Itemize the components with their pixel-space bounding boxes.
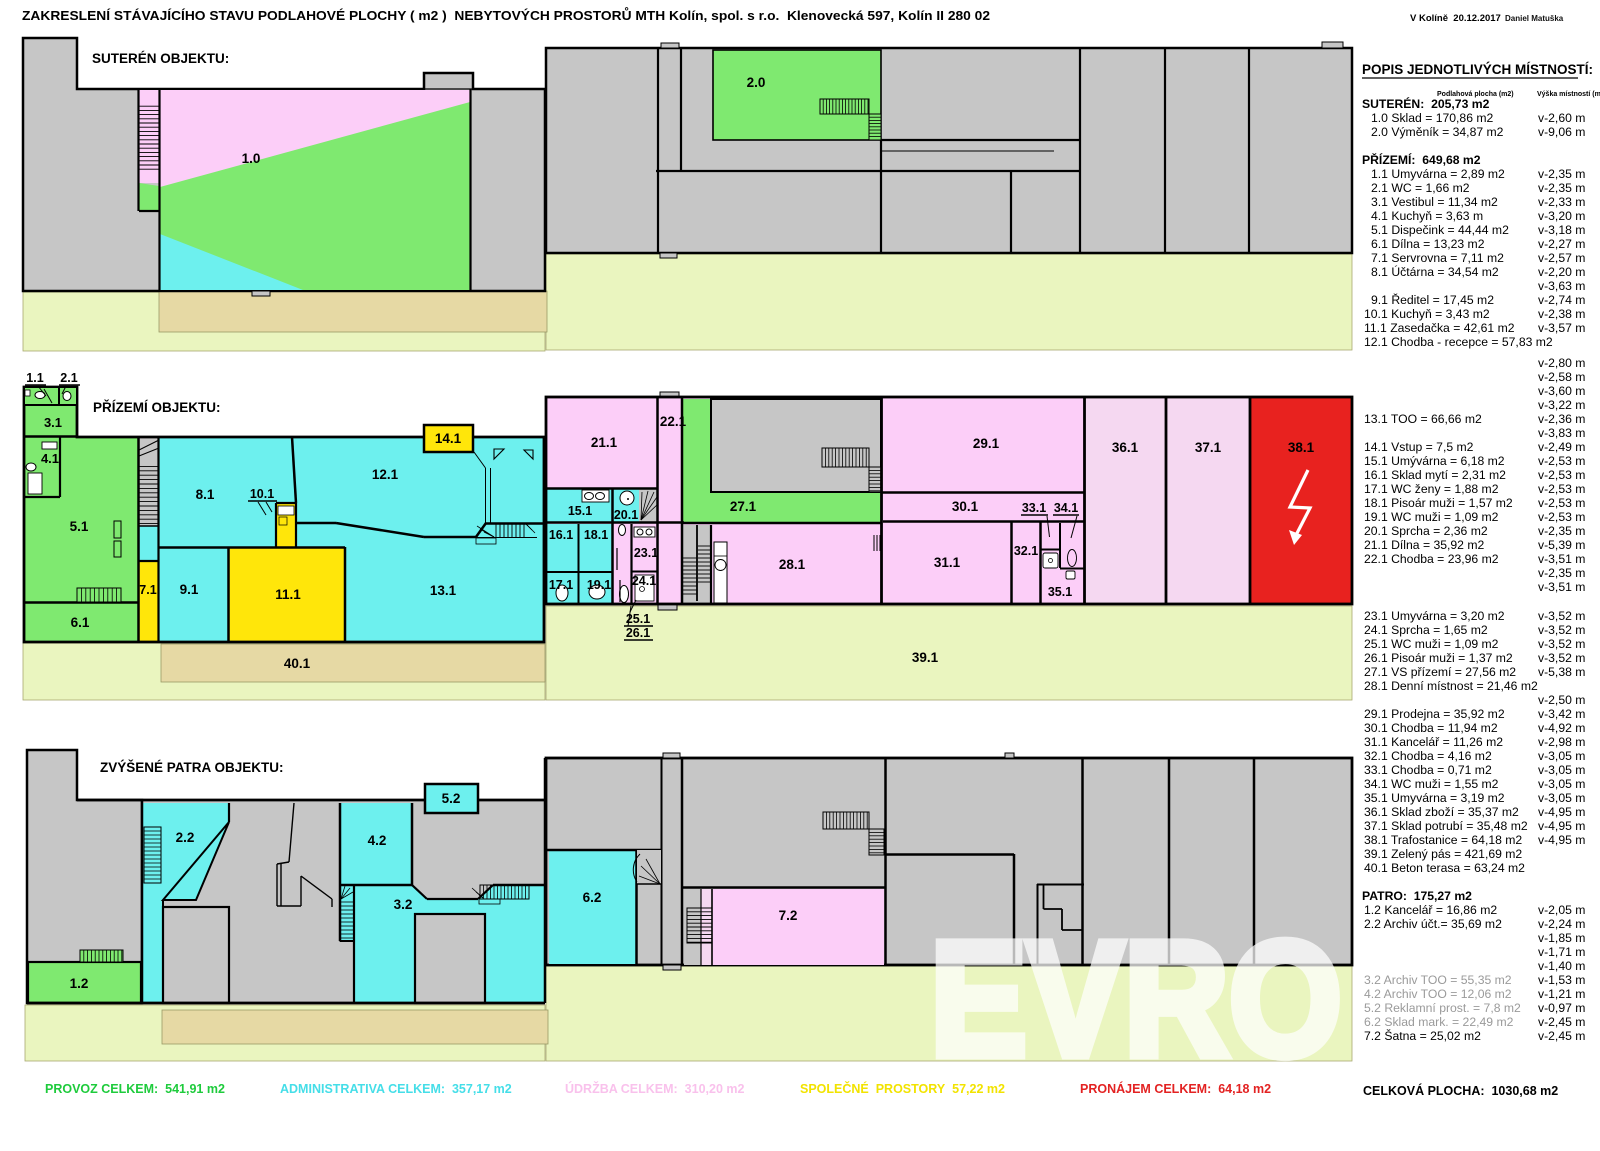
svg-text:39.1: 39.1: [912, 650, 939, 665]
svg-text:29.1: 29.1: [973, 436, 1000, 451]
svg-text:22.1: 22.1: [660, 414, 687, 429]
svg-text:21.1: 21.1: [591, 435, 618, 450]
svg-text:38.1: 38.1: [1288, 440, 1315, 455]
svg-text:7.1 Servrovna = 7,11 m2: 7.1 Servrovna = 7,11 m2: [1371, 251, 1504, 265]
svg-text:v-3,57 m: v-3,57 m: [1538, 321, 1585, 335]
svg-text:24.1 Sprcha = 1,65 m2: 24.1 Sprcha = 1,65 m2: [1364, 623, 1488, 637]
svg-text:2.0: 2.0: [747, 75, 766, 90]
svg-text:v-4,95 m: v-4,95 m: [1538, 819, 1585, 833]
svg-text:EVRO: EVRO: [930, 907, 1342, 1090]
svg-text:v-2,98 m: v-2,98 m: [1538, 735, 1585, 749]
svg-text:33.1 Chodba = 0,71 m2: 33.1 Chodba = 0,71 m2: [1364, 763, 1492, 777]
svg-text:ADMINISTRATIVA CELKEM: 357,17: ADMINISTRATIVA CELKEM: 357,17 m2: [280, 1082, 512, 1096]
svg-text:1.1: 1.1: [26, 371, 43, 385]
svg-text:26.1 Pisoár muži = 1,37 m2: 26.1 Pisoár muži = 1,37 m2: [1364, 651, 1513, 665]
svg-text:v-0,97 m: v-0,97 m: [1538, 1001, 1585, 1015]
svg-text:7.1: 7.1: [139, 583, 156, 597]
svg-text:2.0 Výměník = 34,87 m2: 2.0 Výměník = 34,87 m2: [1371, 125, 1504, 139]
svg-text:3.2: 3.2: [394, 897, 413, 912]
svg-text:v-2,35 m: v-2,35 m: [1538, 167, 1585, 181]
svg-text:3.1: 3.1: [44, 415, 62, 430]
svg-text:39.1 Zelený pás = 421,69 m2: 39.1 Zelený pás = 421,69 m2: [1364, 847, 1522, 861]
svg-text:2.2 Archiv účt.= 35,69 m2: 2.2 Archiv účt.= 35,69 m2: [1364, 917, 1502, 931]
svg-text:v-2,45 m: v-2,45 m: [1538, 1015, 1585, 1029]
svg-text:v-4,92 m: v-4,92 m: [1538, 721, 1585, 735]
svg-text:34.1: 34.1: [1054, 501, 1078, 515]
svg-text:v-2,24 m: v-2,24 m: [1538, 917, 1585, 931]
svg-text:31.1 Kancelář = 11,26 m2: 31.1 Kancelář = 11,26 m2: [1364, 735, 1503, 749]
svg-text:13.1: 13.1: [430, 583, 457, 598]
svg-text:v-2,53 m: v-2,53 m: [1538, 510, 1585, 524]
svg-text:2.1: 2.1: [60, 371, 77, 385]
svg-text:v-2,36 m: v-2,36 m: [1538, 412, 1585, 426]
svg-text:v-5,39 m: v-5,39 m: [1538, 538, 1585, 552]
svg-text:4.1: 4.1: [41, 451, 59, 466]
svg-text:11.1: 11.1: [275, 587, 301, 602]
svg-text:v-4,95 m: v-4,95 m: [1538, 805, 1585, 819]
svg-text:v-2,58 m: v-2,58 m: [1538, 370, 1585, 384]
svg-text:3.1 Vestibul = 11,34 m2: 3.1 Vestibul = 11,34 m2: [1371, 195, 1498, 209]
svg-text:3.2 Archiv TOO = 55,35 m2: 3.2 Archiv TOO = 55,35 m2: [1364, 973, 1512, 987]
svg-text:v-2,53 m: v-2,53 m: [1538, 482, 1585, 496]
svg-text:7.2: 7.2: [779, 908, 798, 923]
svg-text:8.1: 8.1: [196, 487, 215, 502]
svg-text:CELKOVÁ PLOCHA: 1030,68 m2: CELKOVÁ PLOCHA: 1030,68 m2: [1363, 1083, 1558, 1098]
svg-text:37.1 Sklad potrubí = 35,48 m2: 37.1 Sklad potrubí = 35,48 m2: [1364, 819, 1528, 833]
svg-text:v-3,51 m: v-3,51 m: [1538, 552, 1585, 566]
svg-text:v-2,49 m: v-2,49 m: [1538, 440, 1585, 454]
svg-text:38.1 Trafostanice = 64,18 m2: 38.1 Trafostanice = 64,18 m2: [1364, 833, 1522, 847]
svg-text:v-9,06 m: v-9,06 m: [1538, 125, 1585, 139]
svg-text:32.1 Chodba = 4,16 m2: 32.1 Chodba = 4,16 m2: [1364, 749, 1492, 763]
svg-text:Daniel Matuška: Daniel Matuška: [1505, 14, 1564, 23]
svg-text:14.1: 14.1: [435, 431, 462, 446]
svg-text:PŘÍZEMÍ OBJEKTU:: PŘÍZEMÍ OBJEKTU:: [93, 400, 221, 415]
svg-text:v-4,95 m: v-4,95 m: [1538, 833, 1585, 847]
svg-text:15.1 Umývárna = 6,18 m2: 15.1 Umývárna = 6,18 m2: [1364, 454, 1505, 468]
svg-text:6.1 Dílna = 13,23 m2: 6.1 Dílna = 13,23 m2: [1371, 237, 1485, 251]
svg-text:v-3,83 m: v-3,83 m: [1538, 426, 1585, 440]
svg-text:5.1: 5.1: [70, 519, 89, 534]
svg-text:35.1 Umyvárna = 3,19 m2: 35.1 Umyvárna = 3,19 m2: [1364, 791, 1505, 805]
svg-text:v-3,05 m: v-3,05 m: [1538, 777, 1585, 791]
svg-text:22.1 Chodba = 23,96 m2: 22.1 Chodba = 23,96 m2: [1364, 552, 1499, 566]
svg-text:14.1 Vstup = 7,5 m2: 14.1 Vstup = 7,5 m2: [1364, 440, 1474, 454]
svg-text:SPOLEČNÉ PROSTORY 57,22 m2: SPOLEČNÉ PROSTORY 57,22 m2: [800, 1081, 1005, 1096]
svg-text:v-1,85 m: v-1,85 m: [1538, 931, 1585, 945]
svg-text:v-1,40 m: v-1,40 m: [1538, 959, 1585, 973]
svg-text:4.1 Kuchyň = 3,63 m: 4.1 Kuchyň = 3,63 m: [1371, 209, 1483, 223]
svg-text:16.1 Sklad mytí = 2,31 m2: 16.1 Sklad mytí = 2,31 m2: [1364, 468, 1506, 482]
svg-text:v-2,50 m: v-2,50 m: [1538, 693, 1585, 707]
svg-text:v-3,60 m: v-3,60 m: [1538, 384, 1585, 398]
svg-text:v-2,20 m: v-2,20 m: [1538, 265, 1585, 279]
svg-text:10.1 Kuchyň = 3,43 m2: 10.1 Kuchyň = 3,43 m2: [1364, 307, 1490, 321]
svg-text:31.1: 31.1: [934, 555, 961, 570]
svg-text:v-2,53 m: v-2,53 m: [1538, 496, 1585, 510]
svg-text:v-3,20 m: v-3,20 m: [1538, 209, 1585, 223]
svg-text:23.1 Umyvárna = 3,20 m2: 23.1 Umyvárna = 3,20 m2: [1364, 609, 1505, 623]
svg-text:25.1 WC muži = 1,09 m2: 25.1 WC muži = 1,09 m2: [1364, 637, 1499, 651]
svg-text:v-3,52 m: v-3,52 m: [1538, 651, 1585, 665]
svg-text:v-3,42 m: v-3,42 m: [1538, 707, 1585, 721]
svg-text:2.2: 2.2: [176, 830, 195, 845]
svg-text:PATRO: 175,27 m2: PATRO: 175,27 m2: [1362, 889, 1472, 903]
svg-text:6.1: 6.1: [71, 615, 90, 630]
svg-text:18.1 Pisoár muži = 1,57 m2: 18.1 Pisoár muži = 1,57 m2: [1364, 496, 1513, 510]
svg-text:7.2 Šatna = 25,02 m2: 7.2 Šatna = 25,02 m2: [1364, 1028, 1481, 1043]
svg-text:v-3,52 m: v-3,52 m: [1538, 637, 1585, 651]
svg-text:21.1 Dílna = 35,92 m2: 21.1 Dílna = 35,92 m2: [1364, 538, 1484, 552]
svg-text:29.1 Prodejna = 35,92 m2: 29.1 Prodejna = 35,92 m2: [1364, 707, 1505, 721]
svg-text:5.2: 5.2: [442, 791, 461, 806]
svg-text:v-3,05 m: v-3,05 m: [1538, 763, 1585, 777]
svg-text:19.1 WC muži = 1,09 m2: 19.1 WC muži = 1,09 m2: [1364, 510, 1499, 524]
svg-text:v-1,71 m: v-1,71 m: [1538, 945, 1585, 959]
svg-text:16.1: 16.1: [549, 528, 573, 542]
svg-text:v-2,74 m: v-2,74 m: [1538, 293, 1585, 307]
svg-text:6.2: 6.2: [583, 890, 602, 905]
svg-text:ÚDRŽBA CELKEM: 310,20 m2: ÚDRŽBA CELKEM: 310,20 m2: [565, 1081, 744, 1096]
svg-text:ZVÝŠENÉ PATRA OBJEKTU:: ZVÝŠENÉ PATRA OBJEKTU:: [100, 760, 284, 775]
svg-text:PŘÍZEMÍ: 649,68 m2: PŘÍZEMÍ: 649,68 m2: [1362, 152, 1481, 167]
svg-text:20.1: 20.1: [614, 508, 638, 522]
svg-text:5.1 Dispečink = 44,44 m2: 5.1 Dispečink = 44,44 m2: [1371, 223, 1509, 237]
svg-text:v-3,52 m: v-3,52 m: [1538, 623, 1585, 637]
svg-text:v-2,38 m: v-2,38 m: [1538, 307, 1585, 321]
svg-text:v-3,63 m: v-3,63 m: [1538, 279, 1585, 293]
svg-text:v-2,57 m: v-2,57 m: [1538, 251, 1585, 265]
svg-text:19.1: 19.1: [587, 578, 611, 592]
svg-text:24.1: 24.1: [632, 574, 656, 588]
svg-text:20.1 Sprcha = 2,36 m2: 20.1 Sprcha = 2,36 m2: [1364, 524, 1488, 538]
svg-text:32.1: 32.1: [1014, 544, 1038, 558]
svg-text:ZAKRESLENÍ STÁVAJÍCÍHO STAVU P: ZAKRESLENÍ STÁVAJÍCÍHO STAVU PODLAHOVÉ P…: [22, 7, 990, 23]
svg-text:1.0: 1.0: [242, 151, 261, 166]
svg-text:6.2 Sklad mark. = 22,49 m2: 6.2 Sklad mark. = 22,49 m2: [1364, 1015, 1514, 1029]
svg-text:4.2: 4.2: [368, 833, 387, 848]
svg-text:30.1 Chodba = 11,94 m2: 30.1 Chodba = 11,94 m2: [1364, 721, 1498, 735]
svg-text:v-2,05 m: v-2,05 m: [1538, 903, 1585, 917]
svg-text:v-2,35 m: v-2,35 m: [1538, 524, 1585, 538]
svg-text:PRONÁJEM CELKEM: 64,18 m2: PRONÁJEM CELKEM: 64,18 m2: [1080, 1081, 1271, 1096]
svg-text:27.1: 27.1: [730, 499, 757, 514]
svg-text:1.1 Umyvárna = 2,89 m2: 1.1 Umyvárna = 2,89 m2: [1371, 167, 1505, 181]
svg-text:15.1: 15.1: [568, 504, 592, 518]
svg-text:1.0 Sklad = 170,86 m2: 1.0 Sklad = 170,86 m2: [1371, 111, 1494, 125]
svg-text:v-2,33 m: v-2,33 m: [1538, 195, 1585, 209]
svg-text:v-2,45 m: v-2,45 m: [1538, 1029, 1585, 1043]
svg-text:v-2,27 m: v-2,27 m: [1538, 237, 1585, 251]
svg-text:13.1 TOO = 66,66 m2: 13.1 TOO = 66,66 m2: [1364, 412, 1482, 426]
svg-text:1.2: 1.2: [70, 976, 89, 991]
svg-text:v-3,22 m: v-3,22 m: [1538, 398, 1585, 412]
svg-text:10.1: 10.1: [250, 487, 274, 501]
svg-text:12.1 Chodba - recepce = 57,83: 12.1 Chodba - recepce = 57,83 m2: [1364, 335, 1553, 349]
svg-text:30.1: 30.1: [952, 499, 979, 514]
svg-text:40.1: 40.1: [284, 656, 311, 671]
svg-text:POPIS JEDNOTLIVÝCH MÍSTNOSTÍ:: POPIS JEDNOTLIVÝCH MÍSTNOSTÍ:: [1362, 62, 1593, 77]
svg-text:12.1: 12.1: [372, 467, 399, 482]
svg-text:35.1: 35.1: [1048, 585, 1072, 599]
svg-text:v-3,05 m: v-3,05 m: [1538, 749, 1585, 763]
svg-text:V Kolíně 20.12.2017: V Kolíně 20.12.2017: [1410, 13, 1501, 24]
svg-text:v-3,05 m: v-3,05 m: [1538, 791, 1585, 805]
svg-text:v-5,38 m: v-5,38 m: [1538, 665, 1585, 679]
svg-text:v-3,18 m: v-3,18 m: [1538, 223, 1585, 237]
svg-text:27.1 VS přízemí = 27,56 m2: 27.1 VS přízemí = 27,56 m2: [1364, 665, 1516, 679]
svg-text:v-2,53 m: v-2,53 m: [1538, 454, 1585, 468]
svg-text:Výška místností (m): Výška místností (m): [1537, 91, 1600, 98]
svg-text:SUTERÉN: 205,73 m2: SUTERÉN: 205,73 m2: [1362, 96, 1490, 111]
svg-text:v-3,52 m: v-3,52 m: [1538, 609, 1585, 623]
svg-text:17.1 WC ženy = 1,88 m2: 17.1 WC ženy = 1,88 m2: [1364, 482, 1499, 496]
svg-text:28.1: 28.1: [779, 557, 806, 572]
svg-text:5.2 Reklamní prost. = 7,8 m2: 5.2 Reklamní prost. = 7,8 m2: [1364, 1001, 1521, 1015]
svg-text:11.1 Zasedačka = 42,61 m2: 11.1 Zasedačka = 42,61 m2: [1364, 321, 1515, 335]
svg-text:v-2,35 m: v-2,35 m: [1538, 181, 1585, 195]
svg-text:v-3,51 m: v-3,51 m: [1538, 580, 1585, 594]
svg-text:v-2,60 m: v-2,60 m: [1538, 111, 1585, 125]
svg-text:8.1 Účtárna = 34,54 m2: 8.1 Účtárna = 34,54 m2: [1371, 264, 1499, 279]
svg-text:26.1: 26.1: [626, 626, 650, 640]
svg-text:17.1: 17.1: [549, 578, 573, 592]
svg-text:36.1 Sklad zboží = 35,37 m2: 36.1 Sklad zboží = 35,37 m2: [1364, 805, 1519, 819]
svg-text:v-2,35 m: v-2,35 m: [1538, 566, 1585, 580]
svg-text:33.1: 33.1: [1022, 501, 1046, 515]
svg-text:2.1 WC = 1,66 m2: 2.1 WC = 1,66 m2: [1371, 181, 1470, 195]
svg-text:SUTERÉN OBJEKTU:: SUTERÉN OBJEKTU:: [92, 51, 229, 66]
svg-text:36.1: 36.1: [1112, 440, 1139, 455]
svg-text:34.1 WC muži = 1,55 m2: 34.1 WC muži = 1,55 m2: [1364, 777, 1499, 791]
svg-text:23.1: 23.1: [634, 546, 658, 560]
svg-text:v-2,53 m: v-2,53 m: [1538, 468, 1585, 482]
svg-text:9.1: 9.1: [180, 582, 199, 597]
svg-text:v-1,53 m: v-1,53 m: [1538, 973, 1585, 987]
svg-text:37.1: 37.1: [1195, 440, 1222, 455]
svg-text:40.1 Beton terasa = 63,24 m2: 40.1 Beton terasa = 63,24 m2: [1364, 861, 1525, 875]
svg-text:18.1: 18.1: [584, 528, 608, 542]
svg-text:PROVOZ CELKEM: 541,91 m2: PROVOZ CELKEM: 541,91 m2: [45, 1082, 225, 1096]
svg-text:9.1 Ředitel = 17,45 m2: 9.1 Ředitel = 17,45 m2: [1371, 292, 1494, 307]
svg-text:v-1,21 m: v-1,21 m: [1538, 987, 1585, 1001]
svg-text:v-2,80 m: v-2,80 m: [1538, 356, 1585, 370]
svg-text:1.2 Kancelář = 16,86 m2: 1.2 Kancelář = 16,86 m2: [1364, 903, 1497, 917]
svg-text:4.2 Archiv TOO = 12,06 m2: 4.2 Archiv TOO = 12,06 m2: [1364, 987, 1512, 1001]
svg-text:28.1 Denní místnost = 21,46 m2: 28.1 Denní místnost = 21,46 m2: [1364, 679, 1538, 693]
